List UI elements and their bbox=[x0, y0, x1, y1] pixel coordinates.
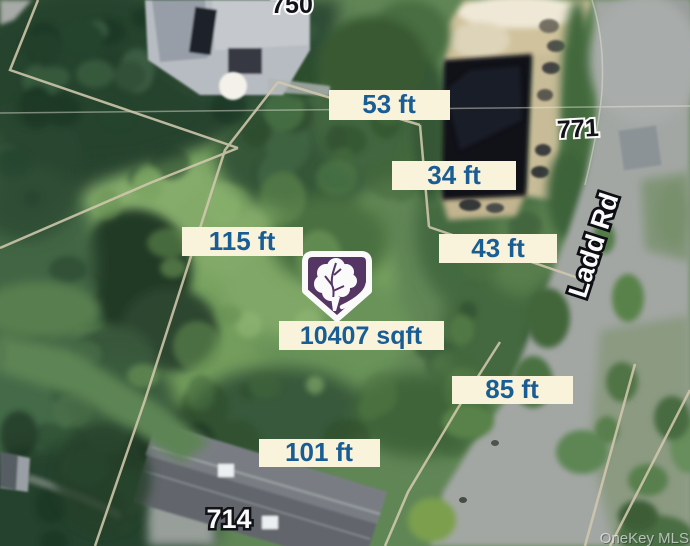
svg-text:115 ft: 115 ft bbox=[209, 226, 276, 256]
svg-text:43 ft: 43 ft bbox=[471, 233, 525, 263]
svg-text:OneKey MLS: OneKey MLS bbox=[600, 530, 689, 546]
svg-text:85 ft: 85 ft bbox=[485, 374, 539, 404]
svg-text:53 ft: 53 ft bbox=[362, 89, 416, 119]
svg-text:771: 771 bbox=[556, 114, 599, 144]
svg-text:714: 714 bbox=[206, 504, 251, 534]
svg-text:101 ft: 101 ft bbox=[285, 437, 353, 467]
svg-text:750: 750 bbox=[271, 0, 313, 19]
svg-text:34 ft: 34 ft bbox=[427, 160, 481, 190]
svg-text:10407 sqft: 10407 sqft bbox=[300, 322, 423, 350]
